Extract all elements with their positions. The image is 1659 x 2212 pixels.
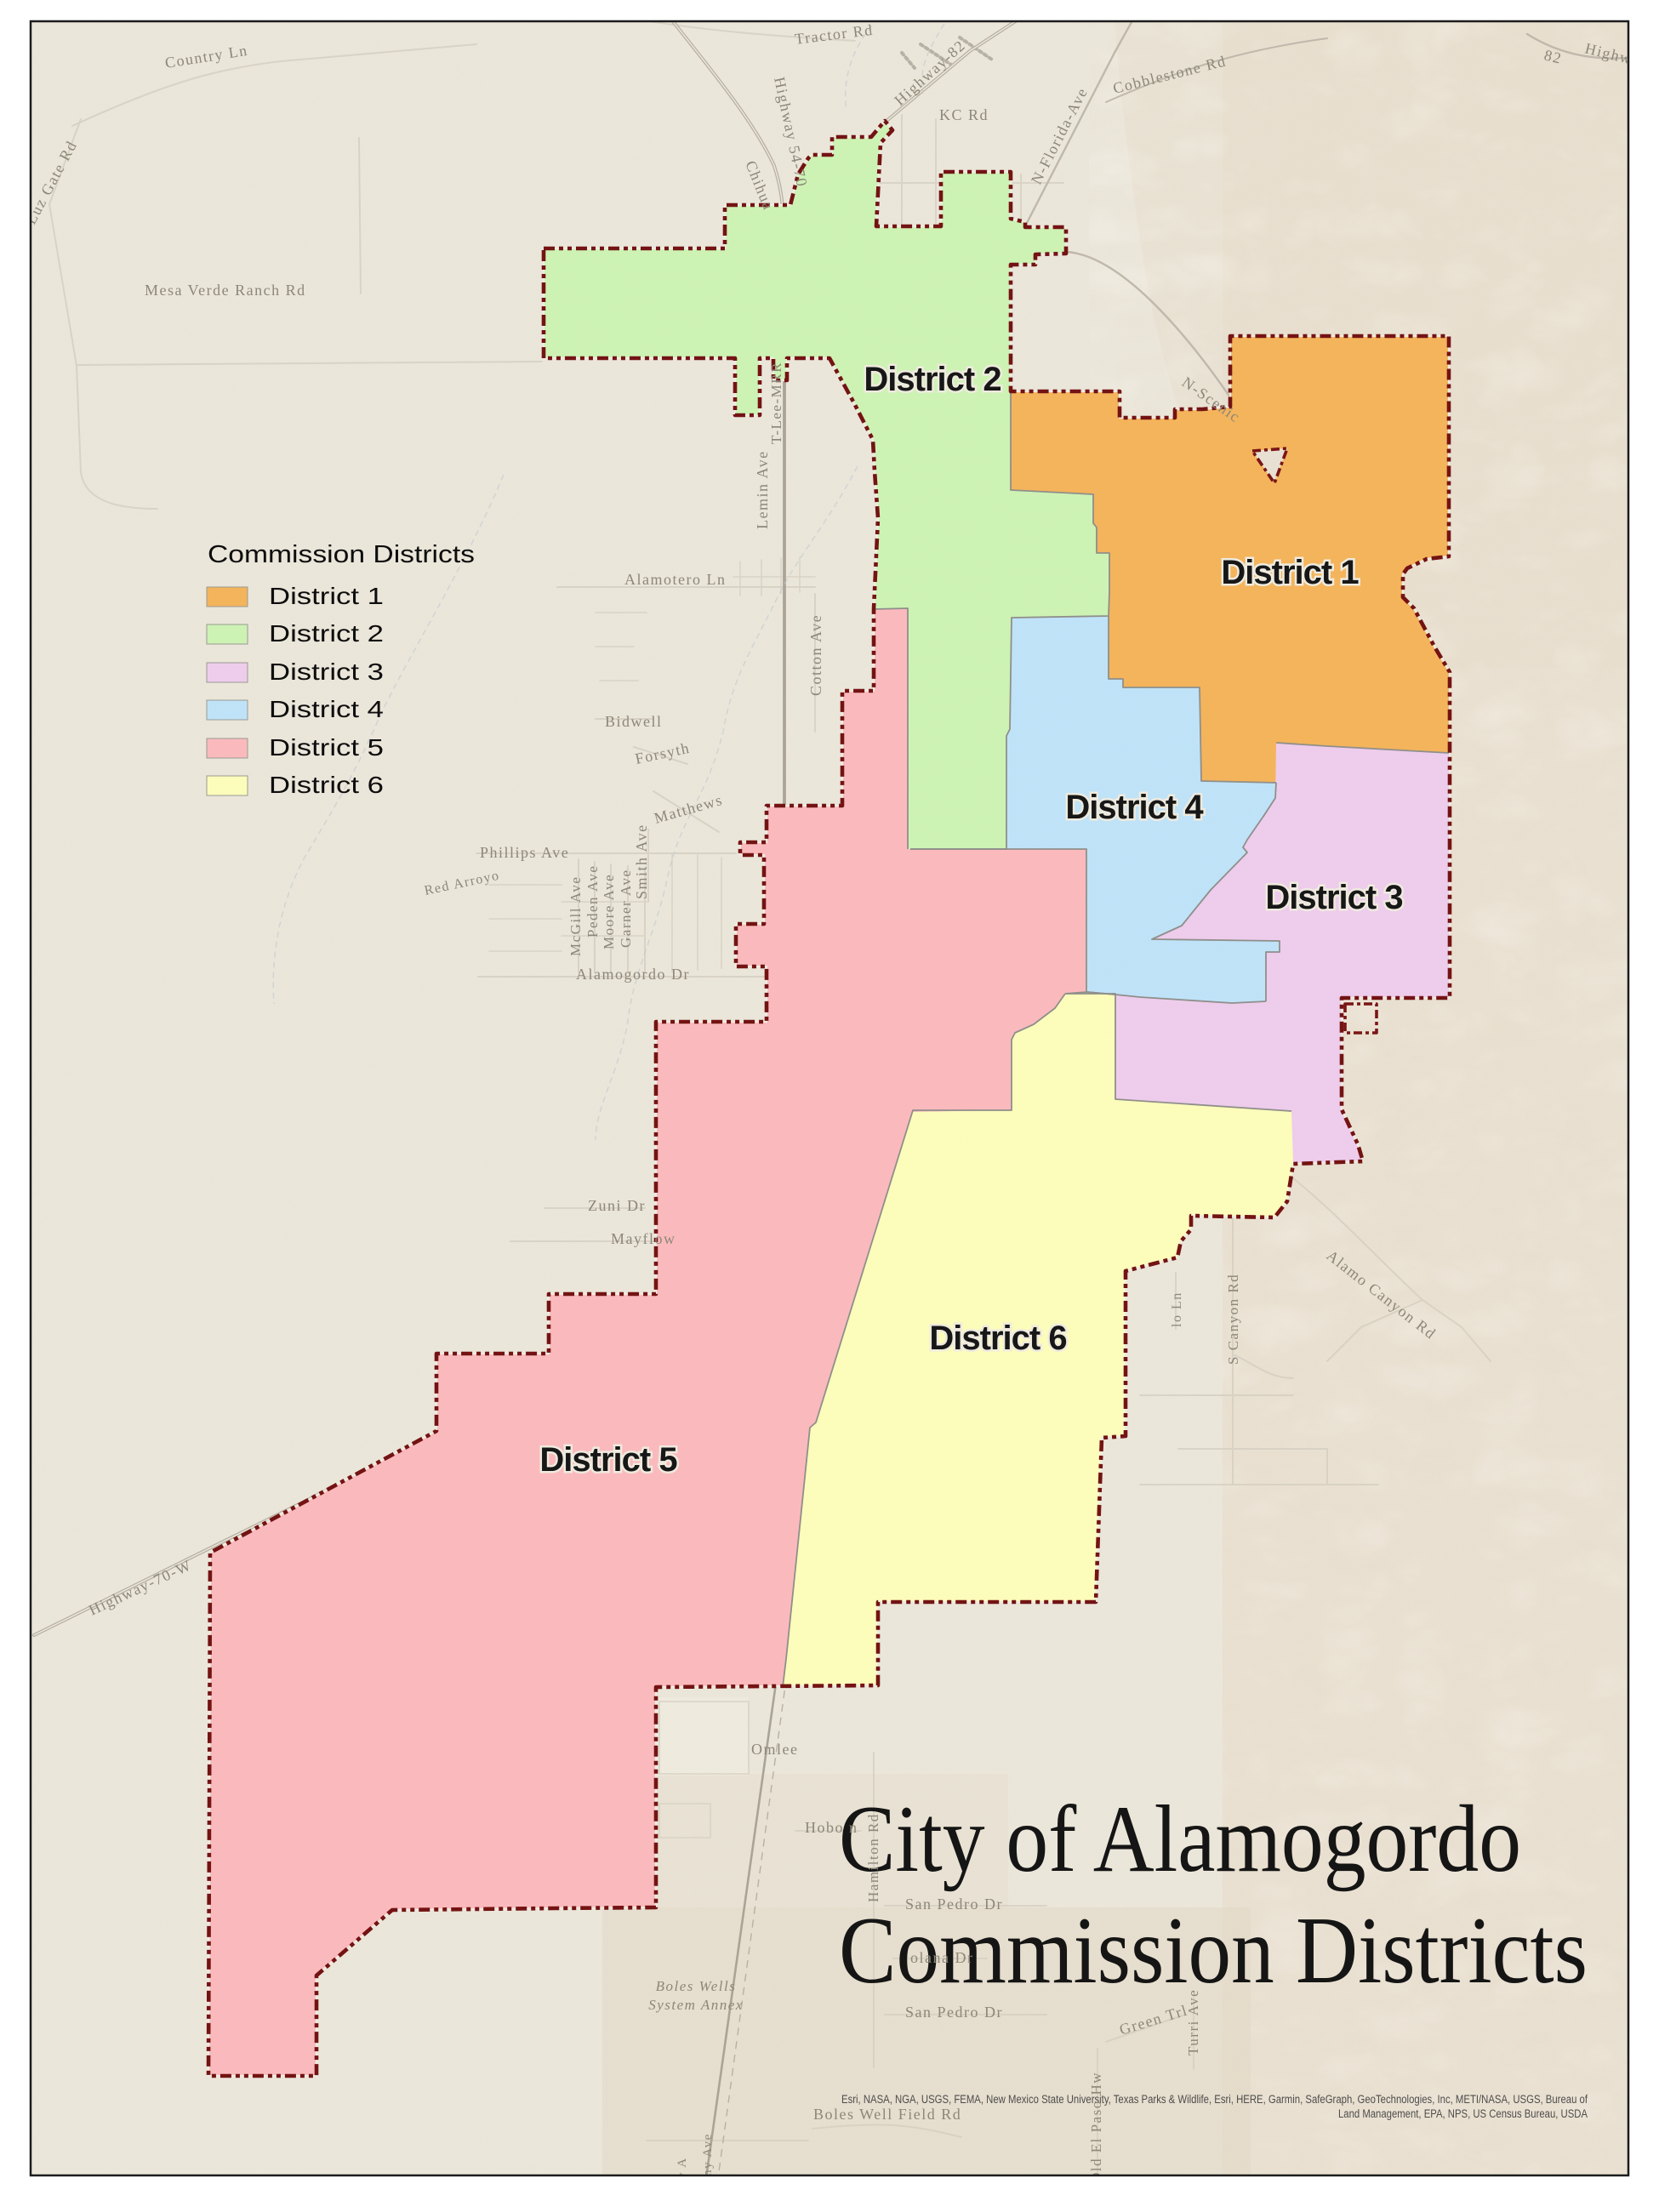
svg-text:Boles: Boles xyxy=(723,2175,737,2210)
